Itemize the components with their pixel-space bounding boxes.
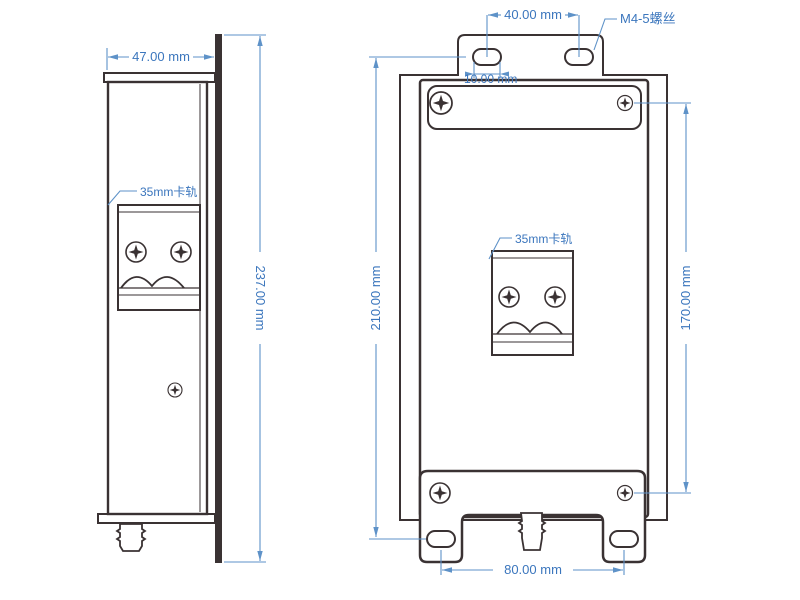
dimension-height-237mm: 237.00 mm	[224, 35, 268, 562]
dim-80mm-text: 80.00 mm	[504, 562, 562, 577]
dim-210mm-text: 210.00 mm	[368, 265, 383, 330]
dim-47mm-text: 47.00 mm	[132, 49, 190, 64]
bottom-right-screw	[618, 486, 633, 501]
din-rail-label-front: 35mm卡轨	[515, 232, 572, 246]
mounting-plate-edge	[215, 34, 222, 563]
antenna-connector-front	[519, 513, 545, 550]
top-cap	[104, 73, 215, 82]
dim-237mm-text: 237.00 mm	[253, 265, 268, 330]
mechanical-drawing-page: 35mm卡轨 47.00 mm 237.00 mm	[0, 0, 800, 600]
screw-spec-label: M4-5螺丝	[620, 11, 676, 26]
top-left-screw	[430, 92, 452, 114]
top-bracket-panel	[428, 86, 641, 129]
antenna-connector-side	[117, 524, 145, 551]
dimension-width-47mm: 47.00 mm	[107, 48, 214, 70]
din-rail-clip-front	[492, 251, 573, 355]
bottom-slot-left	[427, 531, 455, 547]
front-view: 35mm卡轨 M4-5螺丝 40.00 mm 10.00 mm	[368, 7, 693, 577]
side-view: 35mm卡轨 47.00 mm 237.00 mm	[98, 34, 268, 563]
bottom-left-screw	[430, 483, 450, 503]
dim-40mm-text: 40.00 mm	[504, 7, 562, 22]
dim-10mm-text: 10.00 mm	[464, 72, 517, 86]
dimension-bottom-holes-80mm: 80.00 mm	[441, 550, 624, 577]
case-screw	[168, 383, 182, 397]
bottom-cap	[98, 514, 215, 523]
din-rail-label-side: 35mm卡轨	[140, 185, 197, 199]
top-right-screw	[618, 96, 633, 111]
dim-170mm-text: 170.00 mm	[678, 265, 693, 330]
installation-dimension-drawing: 35mm卡轨 47.00 mm 237.00 mm	[0, 0, 800, 600]
din-rail-clip-side	[118, 205, 200, 310]
bottom-slot-right	[610, 531, 638, 547]
